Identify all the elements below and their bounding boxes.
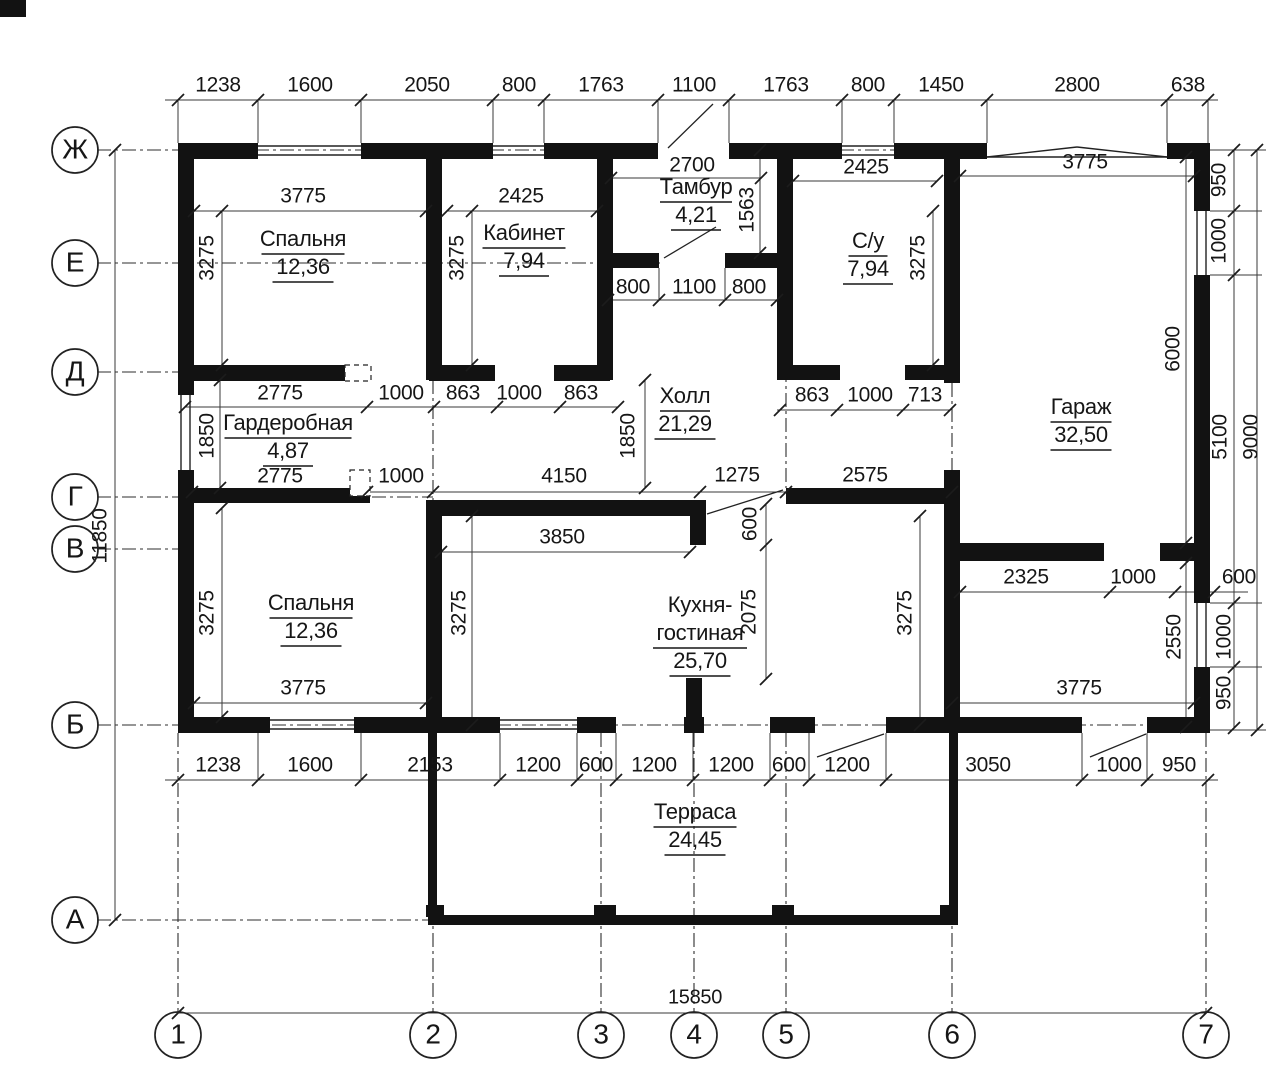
dimension-text: 1275 xyxy=(714,464,760,487)
axis-col-label: 2 xyxy=(425,1018,440,1049)
wall xyxy=(554,365,610,381)
room-area: 4,87 xyxy=(267,438,309,463)
room-label: Холл xyxy=(660,383,711,408)
dimension-text: 1850 xyxy=(617,413,640,459)
dimension-text: 1000 xyxy=(378,465,424,488)
dimension-text: 1000 xyxy=(1208,218,1231,264)
dimension-text: 3775 xyxy=(280,677,326,700)
room-label: Кухня- xyxy=(668,592,732,617)
floor-plan-drawing: 1238160020508001763110017638001450280063… xyxy=(0,0,1281,1080)
axis-col-label: 4 xyxy=(686,1018,701,1049)
wall xyxy=(594,905,616,917)
room-area: 12,36 xyxy=(284,618,338,643)
wall xyxy=(786,488,960,504)
dimension-text: 4150 xyxy=(541,465,587,488)
wall xyxy=(772,905,794,917)
dimension-text: 600 xyxy=(772,754,806,777)
dimension-text: 1000 xyxy=(1213,614,1236,660)
dimension-text: 9000 xyxy=(1240,414,1263,460)
room-label: Кабинет xyxy=(483,220,565,245)
dimension-text: 3850 xyxy=(539,526,585,549)
room-area: 21,29 xyxy=(658,411,712,436)
dimension-text: 950 xyxy=(1162,754,1196,777)
axis-row-label: Е xyxy=(66,246,84,277)
axis-row-label: А xyxy=(66,903,85,934)
wall xyxy=(178,365,370,381)
dimension-text: 863 xyxy=(446,382,480,405)
sliding-door-dashed xyxy=(345,365,371,381)
dimension-text: 600 xyxy=(579,754,613,777)
dimension-text: 950 xyxy=(1213,676,1236,710)
wall xyxy=(178,143,194,395)
dimension-text: 6000 xyxy=(1162,326,1185,372)
dimension-text: 800 xyxy=(502,74,536,97)
axis-row-label: Б xyxy=(66,708,84,739)
room-area: 7,94 xyxy=(847,256,889,281)
dimension-text: 2775 xyxy=(257,465,303,488)
dimension-text: 2575 xyxy=(842,464,888,487)
wall xyxy=(894,143,987,159)
axis-col-label: 3 xyxy=(593,1018,608,1049)
room-label: Спальня xyxy=(268,590,354,615)
dimension-text: 1763 xyxy=(578,74,624,97)
axis-row-label: В xyxy=(66,532,84,563)
dimension-text: 863 xyxy=(795,384,829,407)
dimension-text: 800 xyxy=(851,74,885,97)
dimension-text: 2325 xyxy=(1003,566,1049,589)
room-label: С/у xyxy=(852,228,884,253)
dimension-text: 3775 xyxy=(1056,677,1102,700)
dimension-text: 2800 xyxy=(1054,74,1100,97)
room-label: Гараж xyxy=(1051,394,1112,419)
dimension-text: 3275 xyxy=(894,590,917,636)
floor-plan-page: 1238160020508001763110017638001450280063… xyxy=(0,0,1281,1080)
dimension-text: 1000 xyxy=(1110,566,1156,589)
dimension-text: 1600 xyxy=(287,754,333,777)
wall xyxy=(577,717,616,733)
dimension-text: 2550 xyxy=(1163,614,1186,660)
dimension-text: 1000 xyxy=(1096,754,1142,777)
wall xyxy=(426,500,706,516)
dimension-text: 1000 xyxy=(496,382,542,405)
room-area: 25,70 xyxy=(673,648,727,673)
dimension-text: 1763 xyxy=(763,74,809,97)
dimension-text: 1238 xyxy=(195,74,241,97)
wall xyxy=(178,470,194,733)
dimension-text: 1450 xyxy=(918,74,964,97)
wall xyxy=(905,365,952,380)
dimension-text: 3050 xyxy=(965,754,1011,777)
axis-col-label: 5 xyxy=(778,1018,793,1049)
dimension-text: 800 xyxy=(732,276,766,299)
dimension-text: 2153 xyxy=(407,754,453,777)
axis-row-label: Г xyxy=(68,480,83,511)
dimension-text: 1200 xyxy=(631,754,677,777)
dimension-text: 950 xyxy=(1208,163,1231,197)
wall xyxy=(426,905,444,917)
room-area: 24,45 xyxy=(668,827,722,852)
wall xyxy=(0,0,26,17)
room-area: 12,36 xyxy=(276,254,330,279)
dimension-text: 1600 xyxy=(287,74,333,97)
dimension-text: 713 xyxy=(908,384,942,407)
wall xyxy=(178,717,270,733)
axis-col-label: 1 xyxy=(170,1018,185,1049)
wall xyxy=(178,488,370,503)
wall xyxy=(1147,717,1210,733)
room-label: Гардеробная xyxy=(223,410,353,435)
wall xyxy=(944,543,1104,561)
dimension-text: 638 xyxy=(1171,74,1205,97)
dimension-text: 3275 xyxy=(446,235,469,281)
room-area: 32,50 xyxy=(1054,422,1108,447)
dimension-text: 1850 xyxy=(196,413,219,459)
dimension-text: 600 xyxy=(1222,566,1256,589)
room-label: Тамбур xyxy=(660,174,733,199)
wall xyxy=(1160,543,1204,561)
wall xyxy=(429,365,495,381)
dimension-text: 800 xyxy=(616,276,650,299)
dimension-text: 3275 xyxy=(907,235,930,281)
dimension-text: 11850 xyxy=(89,508,112,563)
axis-row-label: Д xyxy=(66,355,85,386)
wall xyxy=(944,470,960,733)
dimension-text: 5100 xyxy=(1209,414,1232,460)
wall xyxy=(597,150,613,380)
dimension-text: 2425 xyxy=(843,156,889,179)
dimension-text: 863 xyxy=(564,382,598,405)
dimension-text: 600 xyxy=(739,507,762,541)
dimension-text: 1563 xyxy=(736,187,759,233)
room-label: гостиная xyxy=(656,620,743,645)
dimension-text: 1100 xyxy=(672,74,716,97)
wall xyxy=(770,717,815,733)
dimension-text: 3275 xyxy=(448,590,471,636)
dimension-text: 1000 xyxy=(847,384,893,407)
dimension-text: 1100 xyxy=(672,276,716,299)
dimension-text: 3775 xyxy=(280,185,326,208)
room-label: Терраса xyxy=(654,799,737,824)
room-area: 7,94 xyxy=(503,248,545,273)
dimension-text: 3775 xyxy=(1062,151,1108,174)
dimension-text: 1238 xyxy=(195,754,241,777)
dimension-text: 2050 xyxy=(404,74,450,97)
dimension-text: 2775 xyxy=(257,382,303,405)
wall xyxy=(949,733,958,917)
wall xyxy=(686,678,702,717)
dimension-text: 1200 xyxy=(515,754,561,777)
wall xyxy=(426,150,442,380)
wall xyxy=(944,150,960,383)
wall xyxy=(777,365,840,380)
axis-col-label: 6 xyxy=(944,1018,959,1049)
dimension-text: 15850 xyxy=(668,986,722,1008)
room-area: 4,21 xyxy=(675,202,717,227)
wall xyxy=(684,717,704,733)
wall xyxy=(725,253,784,268)
dimension-text: 2425 xyxy=(498,185,544,208)
axis-row-label: Ж xyxy=(62,133,88,164)
wall xyxy=(428,915,958,925)
dimension-text: 3275 xyxy=(196,235,219,281)
axis-col-label: 7 xyxy=(1198,1018,1213,1049)
wall xyxy=(940,905,958,917)
dimension-text: 3275 xyxy=(196,590,219,636)
dimension-text: 1000 xyxy=(378,382,424,405)
room-label: Спальня xyxy=(260,226,346,251)
dimension-text: 1200 xyxy=(824,754,870,777)
wall xyxy=(426,500,442,733)
dimension-text: 1200 xyxy=(708,754,754,777)
wall xyxy=(611,253,659,268)
